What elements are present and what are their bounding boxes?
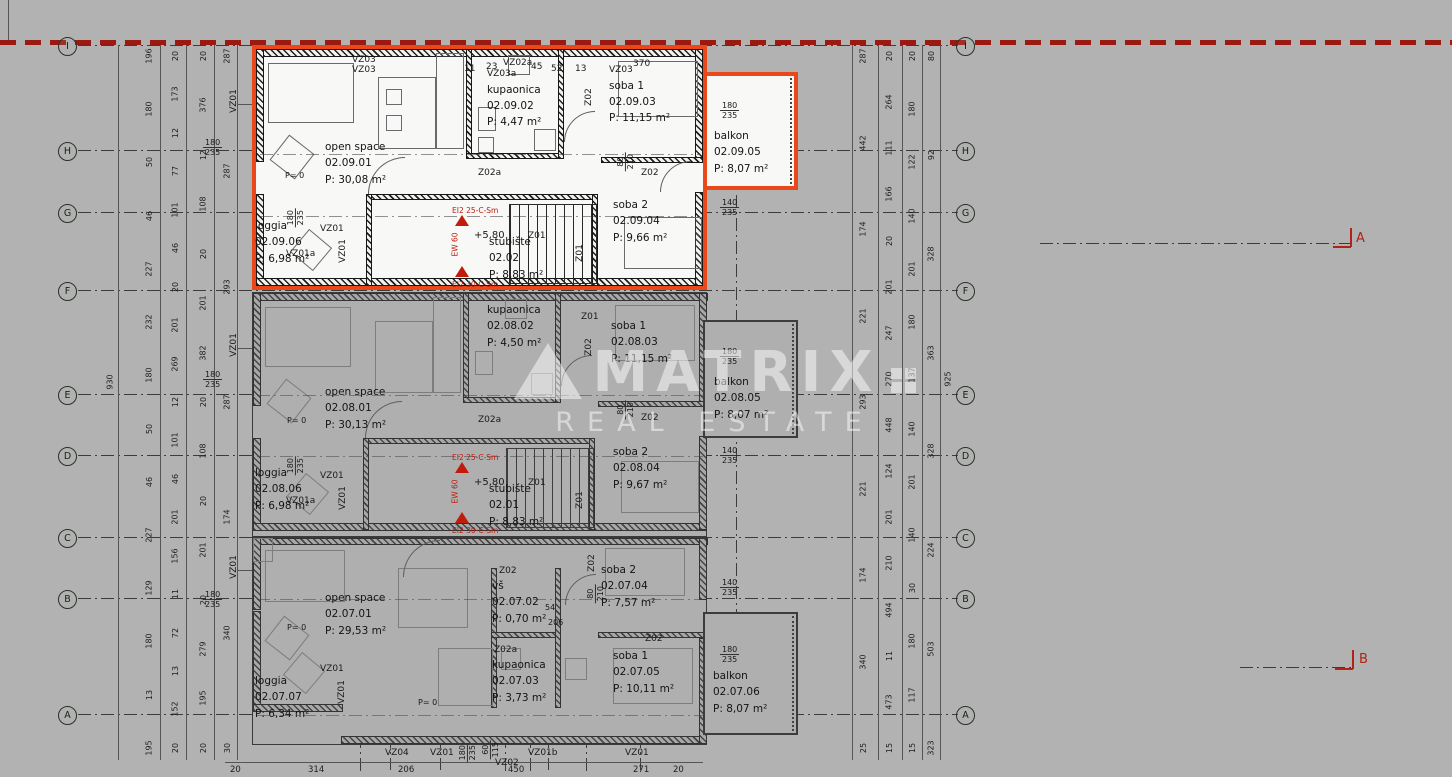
dimension-value: 180 <box>146 368 154 383</box>
room-area: P: 8,07 m² <box>714 161 768 177</box>
dimension-value: 196 <box>146 48 154 63</box>
dimension-chain-right-3: 201801221402011801371402011403018011715 <box>906 52 920 752</box>
tag-z02: Z02 <box>641 413 659 423</box>
dim: 235 <box>203 379 222 389</box>
dim: 235 <box>203 147 222 157</box>
room-label-kupaonica-0208: kupaonica 02.08.02 P: 4,50 m² <box>487 302 541 351</box>
dim: 80 <box>586 584 595 603</box>
room-area: P: 30,13 m² <box>325 417 386 433</box>
dimension-value: 494 <box>886 602 894 617</box>
grid-bubble-right: F <box>956 282 975 301</box>
tag-vz01: VZ01 <box>229 555 239 579</box>
room-label-loggia-0207: loggia 02.07.07 P: 6,34 m² <box>255 673 309 722</box>
dimension-value: 271 <box>633 765 649 775</box>
room-name: loggia <box>255 465 309 481</box>
dimension-value: 269 <box>172 356 180 371</box>
dimension-line <box>902 45 903 760</box>
window-size-tag: 180235 <box>720 645 739 664</box>
room-area: P: 30,08 m² <box>325 172 386 188</box>
dimension-line <box>237 45 238 760</box>
dimension-value: 201 <box>886 510 894 525</box>
dimension-value: 328 <box>928 246 936 261</box>
tag-vz03: VZ03 <box>609 64 670 78</box>
dimension-value: 13 <box>146 690 154 700</box>
dimension-chain-left-4: 28728729328717434030 <box>221 52 235 752</box>
tag-z02: Z02 <box>584 338 594 356</box>
room-name: kupaonica <box>492 657 546 673</box>
dimension-value: 174 <box>224 510 232 525</box>
dim: 180 <box>203 370 222 379</box>
room-area: P: 29,53 m² <box>325 623 386 639</box>
dimension-value: 20 <box>200 743 208 753</box>
dim: 80 <box>616 400 625 419</box>
grid-bubble-left: A <box>58 706 77 725</box>
furniture-dining-table <box>378 77 436 149</box>
dim-note: 206 <box>548 618 563 627</box>
dimension-value: 20 <box>200 51 208 61</box>
tag-vz02a: VZ02a <box>503 58 532 68</box>
dim: 180 <box>203 138 222 147</box>
door-zero-tag: P= 0 <box>285 171 304 180</box>
wall <box>463 293 469 403</box>
dim: 60 <box>481 740 490 759</box>
dimension-value: 12 <box>172 397 180 407</box>
dimension-value: 323 <box>928 740 936 755</box>
dimension-value: 224 <box>928 543 936 558</box>
dim: 140 <box>720 198 739 207</box>
room-label-vs-0207: vš 02.07.02 P: 0,70 m² <box>492 578 546 627</box>
wall <box>491 632 561 638</box>
dimension-value: 174 <box>860 567 868 582</box>
dimension-value: 140 <box>909 208 917 223</box>
room-code: 02.09.03 <box>609 94 670 110</box>
dimension-value: 72 <box>172 627 180 637</box>
dimension-value: 264 <box>886 94 894 109</box>
window-size-tag: 140235 <box>720 446 739 465</box>
wall <box>256 49 703 57</box>
dimension-value: 201 <box>172 317 180 332</box>
dimension-value: 287 <box>860 48 868 63</box>
furniture-chair <box>386 115 402 131</box>
wall <box>256 49 264 162</box>
dimension-value: 247 <box>886 325 894 340</box>
room-code: 02.08.05 <box>714 390 768 406</box>
section-bracket-b <box>1335 668 1353 670</box>
room-label-open-space-0209: open space 02.09.01 P: 30,08 m² <box>325 139 386 188</box>
room-name: soba 1 <box>609 78 670 94</box>
grid-bubble-left: G <box>58 204 77 223</box>
room-area: P: 8,07 m² <box>713 701 767 717</box>
level-marker-icon <box>455 512 469 523</box>
dim: 235 <box>203 599 222 609</box>
room-name: loggia <box>255 218 309 234</box>
dimension-value: 20 <box>172 282 180 292</box>
room-label-loggia-0208: loggia 02.08.06 P: 6,98 m² <box>255 465 309 514</box>
dimension-value: 166 <box>886 187 894 202</box>
dimension-value: 77 <box>172 166 180 176</box>
room-area: P: 11,15 m² <box>609 110 670 126</box>
tag-z02: Z02 <box>645 634 663 644</box>
grid-bubble-left: D <box>58 447 77 466</box>
tag-z01: Z01 <box>528 231 546 241</box>
dimension-value: 20 <box>200 249 208 259</box>
floor-plan-sheet: I H G F E D C B A I H G F E D C B A A B … <box>0 0 1452 777</box>
level-marker-icon <box>455 462 469 473</box>
window-size-tag: 180235 <box>203 590 222 609</box>
fixture-washer <box>534 129 556 151</box>
wall <box>363 438 369 530</box>
wall <box>555 568 561 708</box>
tag-vz01: VZ01 <box>320 664 344 674</box>
fixture-toilet <box>478 137 494 153</box>
dimension-value: 473 <box>886 694 894 709</box>
tag-z02a: Z02a <box>478 168 501 178</box>
furniture-kitchen-counter <box>436 53 464 149</box>
fixture-washer <box>531 373 553 395</box>
dimension-value: 122 <box>909 155 917 170</box>
dimension-value: 227 <box>146 527 154 542</box>
room-name: open space <box>325 590 386 606</box>
section-mark-a: A <box>1356 231 1365 246</box>
dimension-value: 140 <box>909 527 917 542</box>
door-size-tag: 80210 <box>616 400 635 419</box>
wall <box>363 438 595 444</box>
tag-z02a: Z02a <box>478 415 501 425</box>
tag-z01: Z01 <box>528 478 546 488</box>
dim-note: 11 <box>464 64 475 74</box>
room-name: soba 2 <box>601 562 655 578</box>
room-name: soba 1 <box>613 648 674 664</box>
tag-vz01: VZ01 <box>338 239 348 263</box>
dim: 235 <box>720 110 739 120</box>
dimension-value: 173 <box>172 87 180 102</box>
dimension-value: 101 <box>172 202 180 217</box>
dimension-value: 221 <box>860 481 868 496</box>
room-name: balkon <box>714 374 768 390</box>
dimension-value: 137 <box>909 368 917 383</box>
wall <box>253 293 708 301</box>
room-code: 02.07.02 <box>492 594 546 610</box>
tag-vz01: VZ01 <box>625 748 649 758</box>
tag-vz03: VZ03 <box>352 65 376 75</box>
dimension-value: 46 <box>146 211 154 221</box>
tag-vz01b: VZ01b <box>528 748 558 758</box>
wall <box>463 397 561 403</box>
room-label-soba2-0208: soba 2 02.08.04 P: 9,67 m² <box>613 444 667 493</box>
furniture-dining-table <box>375 321 433 393</box>
room-label-kupaonica-0209: VZ03a kupaonica 02.09.02 P: 4,47 m² <box>487 68 541 131</box>
tag-vz01: VZ01 <box>338 486 348 510</box>
dimension-chain-left-1: 1961805046227232180504622712918013195 <box>143 52 157 752</box>
dimension-chain-right-1: 28744217422129322117434025 <box>857 52 871 752</box>
dimension-value: 287 <box>224 394 232 409</box>
dim: 180 <box>720 645 739 654</box>
tag-vz01: VZ01 <box>320 224 344 234</box>
dimension-value: 210 <box>886 556 894 571</box>
furniture-kitchen-counter <box>438 648 493 706</box>
tag-vz03a: VZ03a <box>487 68 541 82</box>
dimension-value: 293 <box>860 394 868 409</box>
dimension-value: 195 <box>200 691 208 706</box>
dimension-value: 92 <box>928 150 936 160</box>
tag-vz01: VZ01 <box>337 680 347 704</box>
dimension-value: 25 <box>860 743 868 753</box>
room-label-stair-0208: stubište 02.01 P: 8,83 m² <box>489 481 543 530</box>
room-code: 02.08.02 <box>487 318 541 334</box>
room-area: P: 3,73 m² <box>492 690 546 706</box>
section-bracket-a <box>1350 228 1352 247</box>
furniture-kitchen-counter <box>433 297 461 393</box>
tag-vz03: VZ03 <box>352 55 376 65</box>
window-size-tag: 180235 <box>203 138 222 157</box>
grid-bubble-left: I <box>58 37 77 56</box>
dimension-total-right: 925 <box>945 371 953 386</box>
dimension-value: 382 <box>200 345 208 360</box>
section-line-a <box>1040 243 1350 244</box>
dimension-value: 363 <box>928 345 936 360</box>
grid-bubble-right: I <box>956 37 975 56</box>
tag-z02: Z02 <box>641 168 659 178</box>
furniture-sofa <box>268 63 354 123</box>
window-size-tag: 180235 <box>203 370 222 389</box>
wall <box>253 293 261 406</box>
dimension-value: 12 <box>172 128 180 138</box>
dimension-line <box>922 45 923 760</box>
dimension-value: 20 <box>172 743 180 753</box>
room-name: open space <box>325 139 386 155</box>
furniture-chair <box>386 89 402 105</box>
dimension-value: 340 <box>860 654 868 669</box>
furniture-sofa <box>265 307 351 367</box>
level-marker-icon <box>455 266 469 277</box>
dimension-value: 314 <box>308 765 324 775</box>
window-size-tag: 180235 <box>720 101 739 120</box>
room-name: soba 2 <box>613 197 667 213</box>
dim: 235 <box>720 455 739 465</box>
tag-vz01: VZ01 <box>229 333 239 357</box>
room-label-balkon-0208: balkon 02.08.05 P: 8,07 m² <box>714 374 768 423</box>
tag-z01: Z01 <box>575 244 585 262</box>
dimension-chain-right-2: 2026411116620201247270448124201210494114… <box>883 52 897 752</box>
room-code: 02.09.01 <box>325 155 386 171</box>
dimension-value: 20 <box>886 235 894 245</box>
room-code: 02.07.05 <box>613 664 674 680</box>
room-label-open-space-0207: open space 02.07.01 P: 29,53 m² <box>325 590 386 639</box>
axis-through-unit <box>257 715 703 716</box>
room-name: balkon <box>714 128 768 144</box>
room-label-soba2-0209: soba 2 02.09.04 P: 9,66 m² <box>613 197 667 246</box>
room-area: P: 11,15 m² <box>611 351 672 367</box>
dimension-value: 20 <box>172 51 180 61</box>
tag-z02a: Z02a <box>494 645 517 655</box>
door-swing <box>561 355 592 386</box>
dim: 80 <box>616 152 625 171</box>
dim: 210 <box>625 400 635 419</box>
grid-bubble-left: B <box>58 590 77 609</box>
dimension-value: 180 <box>146 102 154 117</box>
dimension-value: 221 <box>860 308 868 323</box>
dimension-value: 20 <box>909 51 917 61</box>
room-name: soba 2 <box>613 444 667 460</box>
dimension-value: 20 <box>230 765 241 775</box>
dimension-value: 180 <box>146 634 154 649</box>
window-size-tag: 60115 <box>481 740 500 759</box>
dimension-value: 287 <box>224 48 232 63</box>
dimension-value: 201 <box>200 543 208 558</box>
dimension-value: 232 <box>146 314 154 329</box>
dimension-line <box>878 45 879 760</box>
fire-rating-note: EI2 25-C-Sm <box>452 453 498 462</box>
site-boundary-line <box>0 40 1452 45</box>
dim: 235 <box>720 356 739 366</box>
grid-bubble-right: A <box>956 706 975 725</box>
wall <box>366 194 598 200</box>
room-name: kupaonica <box>487 302 541 318</box>
fire-rating-note: EI2 25-C-Sm <box>452 206 498 215</box>
room-code: 02.09.05 <box>714 144 768 160</box>
dimension-value: 129 <box>146 581 154 596</box>
room-area: P: 8,07 m² <box>714 407 768 423</box>
room-code: 02.08.04 <box>613 460 667 476</box>
dimension-value: 201 <box>909 261 917 276</box>
section-mark-b: B <box>1359 652 1368 667</box>
door-zero-tag: P= 0 <box>287 623 306 632</box>
dimension-value: 20 <box>673 765 684 775</box>
dimension-value: 11 <box>172 589 180 599</box>
room-area: P: 4,50 m² <box>487 335 541 351</box>
dimension-value: 108 <box>200 444 208 459</box>
dim: 235 <box>720 207 739 217</box>
grid-bubble-right: G <box>956 204 975 223</box>
dimension-chain-right-4: 8092328363328224503323 <box>925 52 939 752</box>
room-code: 02.09.02 <box>487 98 541 114</box>
dimension-value: 180 <box>909 314 917 329</box>
grid-bubble-left: F <box>58 282 77 301</box>
dimension-value: 195 <box>146 740 154 755</box>
door-swing <box>564 111 595 142</box>
door-swing <box>660 161 691 192</box>
door-size-tag: 80210 <box>616 152 635 171</box>
window-size-tag: 140235 <box>720 578 739 597</box>
room-code: 02.09.04 <box>613 213 667 229</box>
grid-bubble-left: C <box>58 529 77 548</box>
wall-rating-note: EW 60 <box>451 479 460 503</box>
room-code: 02.07.07 <box>255 689 309 705</box>
room-area: P: 6,34 m² <box>255 706 309 722</box>
tag-z01: Z01 <box>575 491 585 509</box>
dimension-value: 50 <box>146 423 154 433</box>
tag-vz01: VZ01 <box>320 471 344 481</box>
wall <box>341 736 707 744</box>
door-zero-tag: P= 0 <box>418 698 437 707</box>
dim: 235 <box>720 654 739 664</box>
dim: 140 <box>720 446 739 455</box>
tag-vz01a: VZ01a <box>286 496 315 506</box>
tag-z02: Z02 <box>584 88 594 106</box>
tag-z02: Z02 <box>499 566 517 576</box>
room-code: 02.08.03 <box>611 334 672 350</box>
level-marker-icon <box>455 215 469 226</box>
dimension-value: 15 <box>886 743 894 753</box>
dimension-value: 117 <box>909 687 917 702</box>
grid-bubble-right: E <box>956 386 975 405</box>
dimension-value: 287 <box>224 164 232 179</box>
wall <box>366 194 372 286</box>
wall <box>555 293 561 403</box>
tag-vz01a: VZ01a <box>286 249 315 259</box>
window-size-tag: 140235 <box>720 198 739 217</box>
grid-bubble-right: H <box>956 142 975 161</box>
room-name: loggia <box>255 673 309 689</box>
edge-line <box>8 0 9 43</box>
dimension-value: 15 <box>909 743 917 753</box>
dimension-value: 328 <box>928 444 936 459</box>
wall <box>253 538 708 545</box>
door-zero-tag: P= 0 <box>287 416 306 425</box>
dim: 210 <box>625 152 635 171</box>
section-bracket-a <box>1333 246 1351 248</box>
room-label-kupaonica-0207: kupaonica 02.07.03 P: 3,73 m² <box>492 657 546 706</box>
dimension-line <box>118 45 119 760</box>
dimension-value: 442 <box>860 135 868 150</box>
dimension-value: 80 <box>928 51 936 61</box>
dimension-line <box>852 45 853 760</box>
dimension-value: 46 <box>146 477 154 487</box>
dim: 140 <box>720 578 739 587</box>
tag-z02: Z02 <box>587 554 597 572</box>
dimension-value: 13 <box>172 666 180 676</box>
dimension-value: 30 <box>909 583 917 593</box>
dimension-value: 227 <box>146 261 154 276</box>
grid-bubble-right: D <box>956 447 975 466</box>
dimension-line <box>186 45 187 760</box>
dimension-total-left: 930 <box>107 374 115 389</box>
dimension-value: 50 <box>146 157 154 167</box>
wall <box>253 523 369 531</box>
window-tag: VZ03VZ03 <box>352 55 376 75</box>
dimension-value: 201 <box>886 279 894 294</box>
dimension-value: 11 <box>886 651 894 661</box>
dimension-line <box>940 45 941 760</box>
dimension-value: 201 <box>909 474 917 489</box>
fire-rating-note: EI2 30-C-Sm <box>452 280 498 289</box>
dim: 235 <box>467 743 477 762</box>
dimension-value: 206 <box>398 765 414 775</box>
grid-bubble-right: C <box>956 529 975 548</box>
room-area: P: 9,66 m² <box>613 230 667 246</box>
dimension-value: 448 <box>886 417 894 432</box>
section-bracket-b <box>1352 650 1354 669</box>
window-size-tag: 180235 <box>458 743 477 762</box>
dimension-value: 503 <box>928 641 936 656</box>
room-code: 02.07.03 <box>492 673 546 689</box>
fixture-sink <box>475 351 493 375</box>
dimension-value: 174 <box>860 221 868 236</box>
dimension-value: 46 <box>172 474 180 484</box>
dimension-value: 340 <box>224 625 232 640</box>
dimension-chain-left-2: 2017312771014620201269121014620115611721… <box>169 52 183 752</box>
wall <box>699 436 707 530</box>
tag-vz01: VZ01 <box>229 89 239 113</box>
tag-vz04: VZ04 <box>385 748 409 758</box>
room-label-balkon-0209: balkon 02.09.05 P: 8,07 m² <box>714 128 768 177</box>
dimension-value: 20 <box>200 397 208 407</box>
dim-note: 52 <box>551 64 562 74</box>
room-label-soba2-0207: soba 2 02.07.04 P: 7,57 m² <box>601 562 655 611</box>
fixture-sink <box>253 538 273 562</box>
room-label-soba1-0207: soba 1 02.07.05 P: 10,11 m² <box>613 648 674 697</box>
tag-vz02: VZ02 <box>495 758 519 768</box>
